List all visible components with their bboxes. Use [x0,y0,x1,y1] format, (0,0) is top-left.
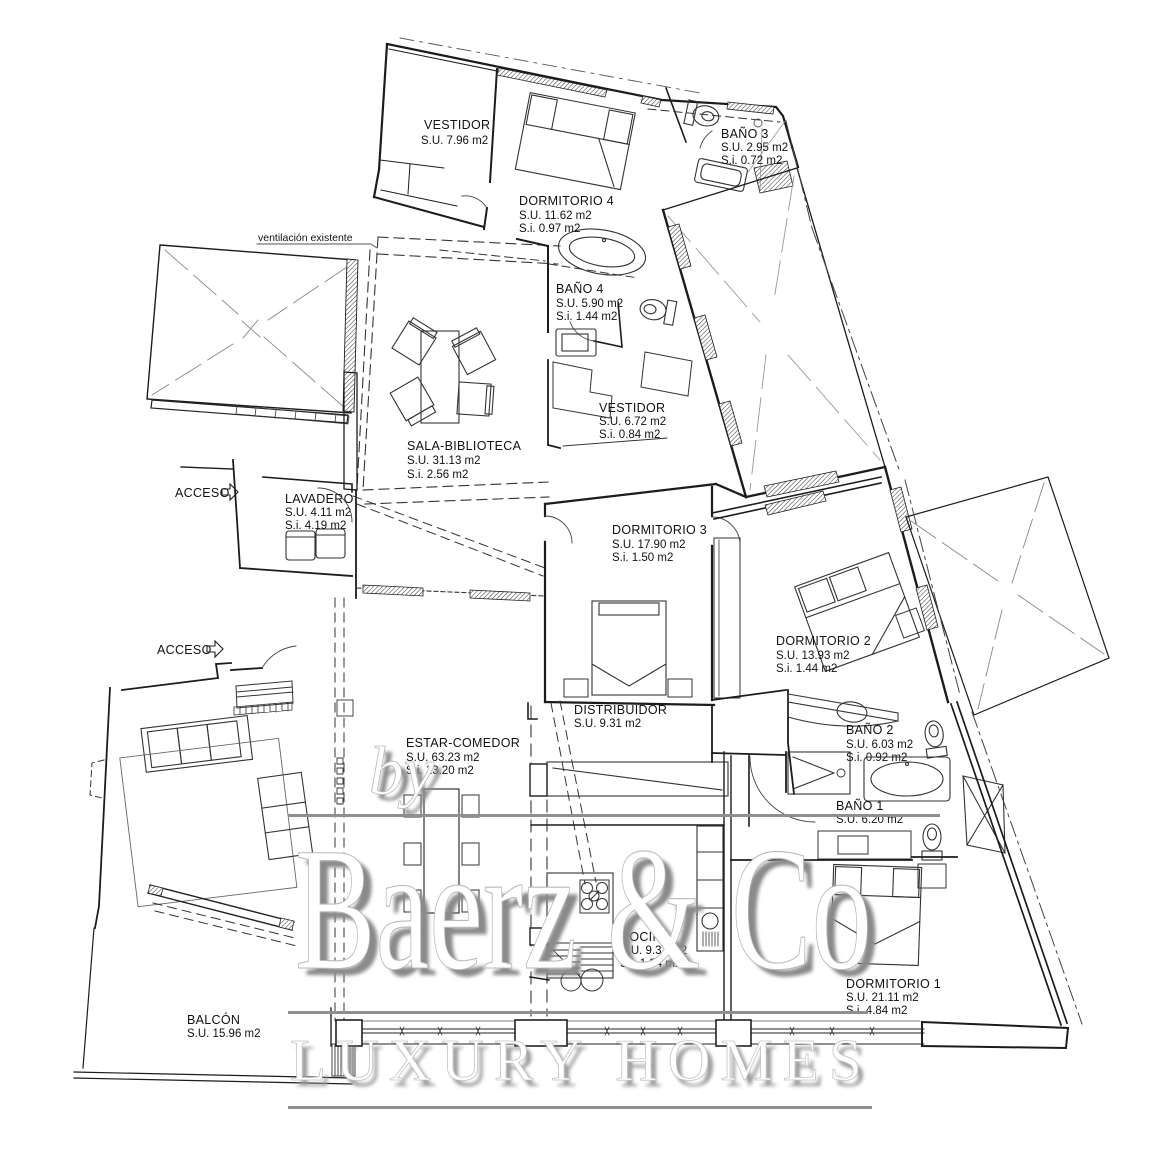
svg-text:S.U. 2.95 m2: S.U. 2.95 m2 [721,142,788,154]
svg-text:S.U. 17.90 m2: S.U. 17.90 m2 [612,539,686,551]
svg-text:BAÑO 4: BAÑO 4 [556,282,604,296]
svg-text:S.i. 1.44 m2: S.i. 1.44 m2 [556,311,617,323]
svg-text:DORMITORIO 4: DORMITORIO 4 [519,194,614,208]
svg-text:S.i. 1.50 m2: S.i. 1.50 m2 [612,552,673,564]
svg-text:VESTIDOR: VESTIDOR [424,118,490,132]
svg-text:S.i. 4.19 m2: S.i. 4.19 m2 [285,520,346,532]
svg-text:S.U. 15.96 m2: S.U. 15.96 m2 [187,1028,261,1040]
svg-text:S.U. 5.90 m2: S.U. 5.90 m2 [556,298,623,310]
svg-text:BAÑO 1: BAÑO 1 [836,799,884,813]
svg-text:S.U. 13.93 m2: S.U. 13.93 m2 [776,650,850,662]
svg-text:S.U. 11.62 m2: S.U. 11.62 m2 [519,210,592,222]
svg-text:S.U. 9.31 m2: S.U. 9.31 m2 [574,718,641,730]
svg-text:DORMITORIO 2: DORMITORIO 2 [776,634,871,648]
svg-text:LUXURY HOMES: LUXURY HOMES [290,1027,872,1093]
svg-text:by: by [369,733,435,809]
svg-text:S.i. 2.56 m2: S.i. 2.56 m2 [407,469,468,481]
svg-text:S.i. 0.97 m2: S.i. 0.97 m2 [519,223,580,235]
svg-text:S.U. 4.11 m2: S.U. 4.11 m2 [285,507,351,519]
svg-text:ACCESO: ACCESO [175,486,230,500]
svg-text:SALA-BIBLIOTECA: SALA-BIBLIOTECA [407,439,522,453]
svg-text:S.U. 31.13 m2: S.U. 31.13 m2 [407,455,481,467]
svg-text:DORMITORIO 3: DORMITORIO 3 [612,523,707,537]
svg-text:BALCÓN: BALCÓN [187,1012,240,1027]
svg-text:S.U. 7.96 m2: S.U. 7.96 m2 [421,135,488,147]
svg-text:S.i. 0.72 m2: S.i. 0.72 m2 [721,155,782,167]
svg-text:S.i. 1.44 m2: S.i. 1.44 m2 [776,663,837,675]
svg-text:BAÑO 3: BAÑO 3 [721,127,769,141]
svg-text:Baerz & Co: Baerz & Co [295,812,872,1007]
svg-text:S.U. 6.72 m2: S.U. 6.72 m2 [599,416,666,428]
svg-text:ventilación existente: ventilación existente [258,232,353,244]
svg-text:VESTIDOR: VESTIDOR [599,401,665,415]
svg-text:DISTRIBUIDOR: DISTRIBUIDOR [574,703,667,717]
svg-text:BAÑO 2: BAÑO 2 [846,723,894,737]
svg-text:S.U. 6.03 m2: S.U. 6.03 m2 [846,739,913,751]
svg-text:S.i. 0.84 m2: S.i. 0.84 m2 [599,429,660,441]
svg-text:ACCESO: ACCESO [157,643,212,657]
